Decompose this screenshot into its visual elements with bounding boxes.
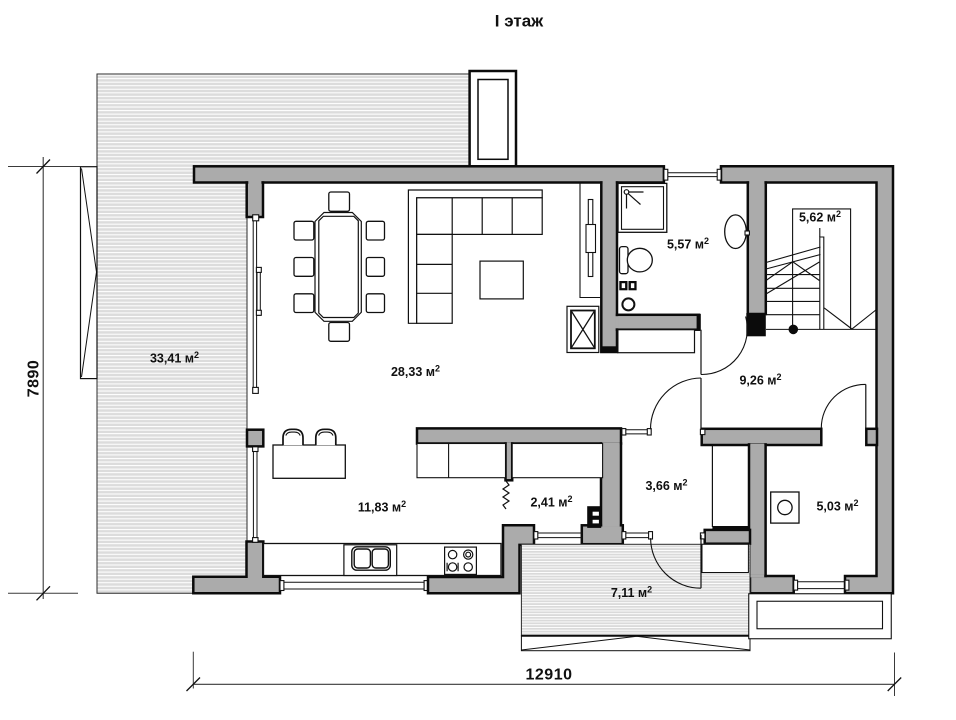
svg-text:33,41 м2: 33,41 м2 bbox=[150, 350, 199, 366]
svg-text:7,11 м2: 7,11 м2 bbox=[611, 584, 652, 600]
svg-text:11,83 м2: 11,83 м2 bbox=[358, 499, 406, 515]
svg-text:5,62 м2: 5,62 м2 bbox=[799, 209, 841, 225]
svg-text:3,66 м2: 3,66 м2 bbox=[645, 478, 687, 494]
svg-text:28,33 м2: 28,33 м2 bbox=[391, 363, 440, 379]
svg-text:2,41 м2: 2,41 м2 bbox=[530, 494, 572, 510]
svg-text:5,57 м2: 5,57 м2 bbox=[667, 236, 709, 252]
svg-text:12910: 12910 bbox=[526, 667, 573, 684]
svg-text:5,03 м2: 5,03 м2 bbox=[816, 498, 858, 514]
svg-text:7890: 7890 bbox=[25, 360, 42, 398]
svg-text:9,26 м2: 9,26 м2 bbox=[739, 372, 781, 388]
svg-text:I этаж: I этаж bbox=[495, 12, 544, 31]
